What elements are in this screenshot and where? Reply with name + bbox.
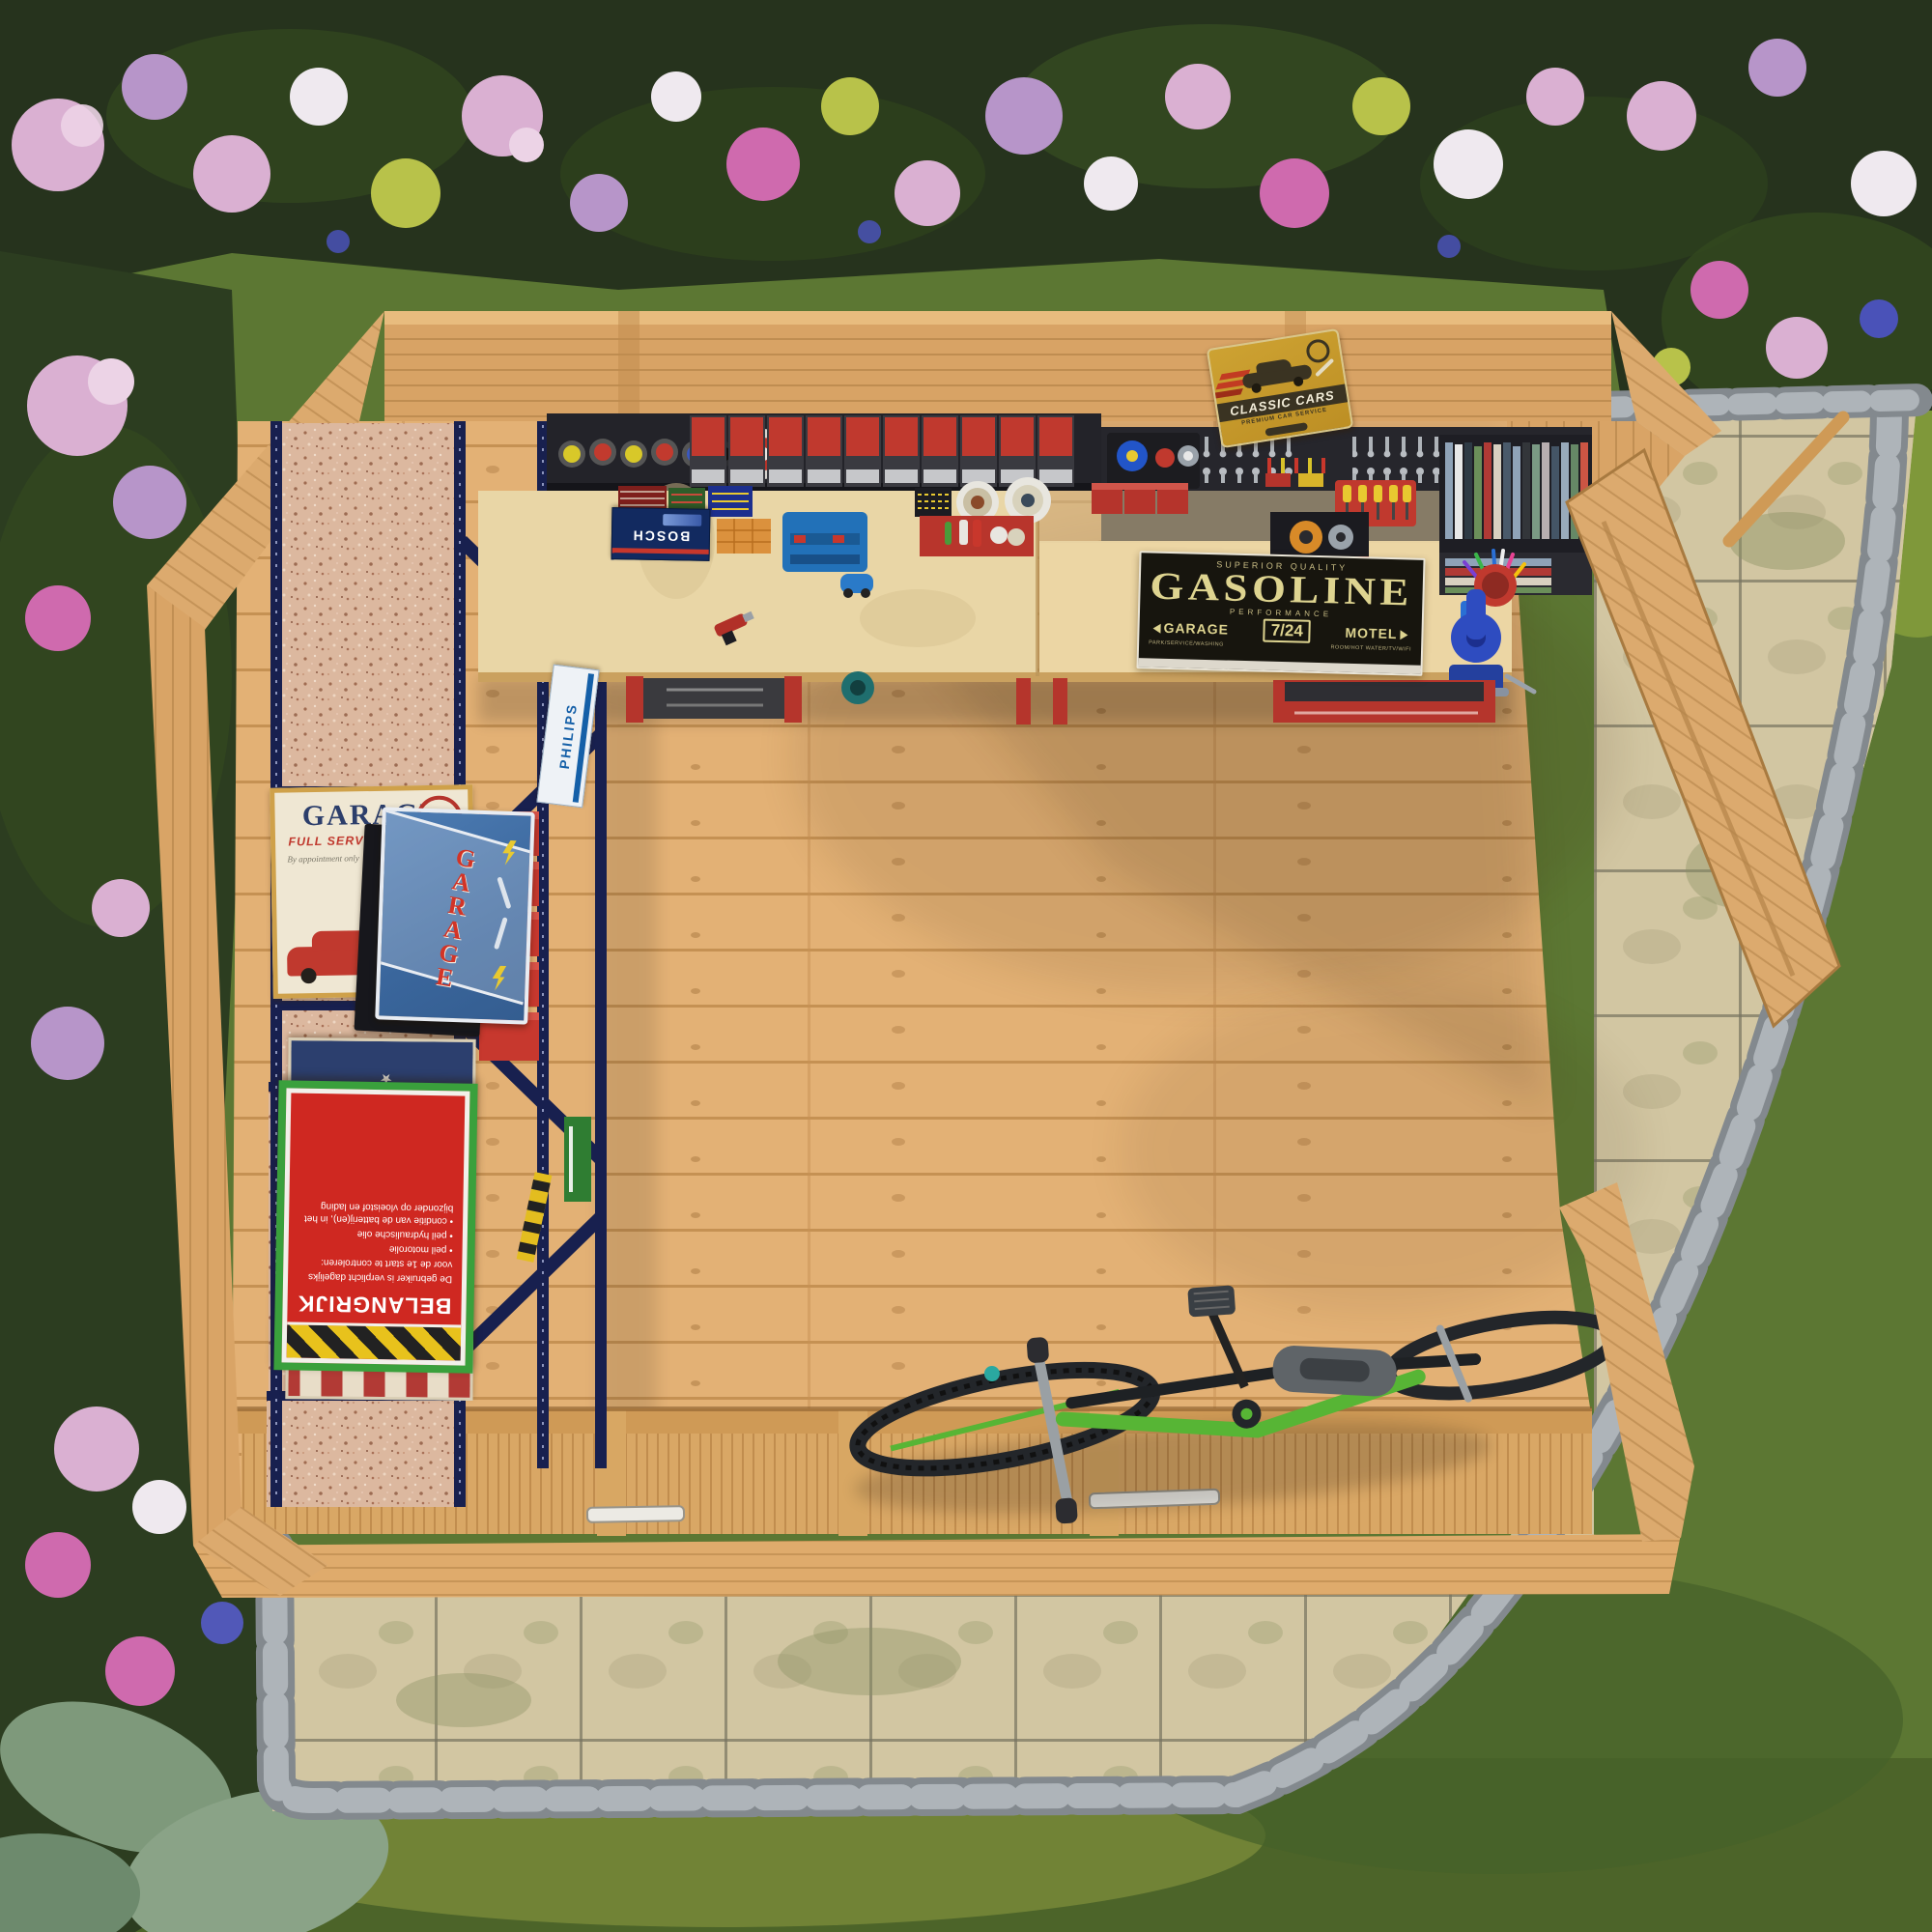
- belangrijk-bullet: • peil hydraulische olie: [298, 1227, 453, 1242]
- manuals-books: [1439, 435, 1592, 595]
- gasoline-sign: SUPERIOR QUALITY GASOLINE PERFORMANCE GA…: [1136, 551, 1425, 676]
- garage-tin-sign: GARAGE: [375, 807, 535, 1024]
- wrench-set: [1352, 437, 1439, 483]
- green-toolbox: [564, 1117, 591, 1202]
- hazard-stripes: [287, 1321, 462, 1360]
- belangrijk-line2: voor de 1e start te controleren:: [298, 1256, 452, 1271]
- gasoline-motel-label: MOTEL: [1345, 625, 1407, 642]
- blue-tool-case: [782, 512, 867, 572]
- classic-car-icon: [1241, 364, 1312, 389]
- gasoline-garage-services: PARK/SERVICE/WASHING: [1149, 639, 1224, 647]
- door-slide-rail: [587, 1506, 684, 1522]
- red-parts-tray: [920, 516, 1034, 556]
- classic-cars-plate: [1264, 422, 1308, 437]
- classic-cars-sign: CLASSIC CARS PREMIUM CAR SERVICE: [1207, 328, 1354, 448]
- bosch-brand: BOSCH: [612, 527, 709, 545]
- bosch-product-image: [663, 514, 701, 526]
- small-red-bins: [1092, 483, 1188, 514]
- bosch-red-stripe: [612, 548, 709, 554]
- wall-top: [384, 311, 1611, 421]
- belangrijk-sign: BELANGRIJK De gebruiker is verplicht dag…: [273, 1080, 477, 1374]
- gasoline-title: GASOLINE: [1123, 567, 1440, 612]
- philips-brand: PHILIPS: [556, 702, 580, 770]
- arrow-right-icon: [1400, 631, 1407, 640]
- belangrijk-title: BELANGRIJK: [287, 1290, 461, 1319]
- belangrijk-line1: De gebruiker is verplicht dagelijks: [298, 1270, 452, 1286]
- gasoline-garage-label: GARAGE: [1152, 620, 1229, 638]
- gasoline-hours: 7/24: [1263, 619, 1311, 643]
- bosch-case-box: BOSCH: [611, 507, 711, 561]
- belangrijk-bullet: • conditie van de batterij(en), in het b…: [298, 1200, 453, 1228]
- spray-holder: [1107, 433, 1200, 489]
- garden-shed-scene: SUPERIOR QUALITY GASOLINE PERFORMANCE GA…: [0, 0, 1932, 1932]
- orange-parts-box: [717, 519, 771, 554]
- target-icon: [1305, 338, 1331, 364]
- belangrijk-body: De gebruiker is verplicht dagelijks voor…: [288, 1199, 464, 1293]
- arrow-left-icon: [1152, 624, 1160, 634]
- gasoline-motel-services: ROOM/HOT WATER/TV/WIFI: [1330, 644, 1411, 652]
- belangrijk-bullet: • peil motorolie: [298, 1241, 453, 1257]
